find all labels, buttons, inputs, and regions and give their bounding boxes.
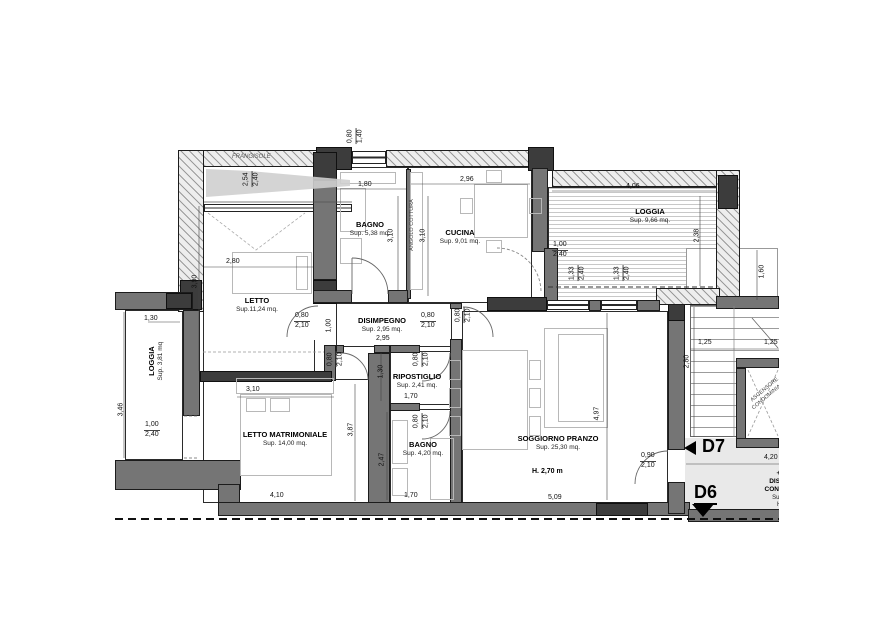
label-soggiorno: SOGGIORNO PRANZO Sup. 25,30 mq. bbox=[500, 434, 616, 452]
room-area: Sup. 25,30 mq. bbox=[500, 444, 616, 452]
wall-pillar bbox=[313, 152, 337, 180]
dim-cucina-w: 2,96 bbox=[460, 176, 474, 183]
chair bbox=[449, 360, 461, 380]
chair bbox=[529, 416, 541, 436]
dim-width: 0,80 bbox=[413, 413, 423, 429]
dim-porta-ripostiglio: 0,80 2,10 bbox=[413, 351, 432, 367]
room-name: RIPOSTIGLIO bbox=[384, 372, 450, 382]
dim-height: 2,10 bbox=[420, 322, 436, 331]
frangisole-note: FRANGISOLE bbox=[232, 154, 271, 160]
dim-height: 2,40 bbox=[252, 171, 261, 187]
dim-right-side: 1,60 bbox=[758, 265, 765, 279]
dim-width: 1,00 bbox=[552, 241, 568, 251]
label-letto-matrimoniale: LETTO MATRIMONIALE Sup. 14,00 mq. bbox=[230, 430, 340, 448]
dim-height: 2,10 bbox=[464, 307, 473, 323]
dim-bagno1-h: 3,10 bbox=[387, 229, 394, 243]
dim-loggia-top-w: 4,06 bbox=[626, 183, 640, 190]
wall-segment bbox=[637, 300, 660, 311]
dim-stair-h: 2,80 bbox=[683, 355, 690, 369]
chair bbox=[460, 198, 473, 214]
door-opening-entry bbox=[669, 450, 684, 482]
wall-segment bbox=[313, 180, 337, 280]
ceiling-height-note: H. 2,70 m bbox=[532, 468, 563, 475]
room-name: SOGGIORNO PRANZO bbox=[500, 434, 616, 444]
pillow bbox=[270, 398, 290, 412]
wall-segment bbox=[736, 358, 779, 368]
dim-porta-loggia: 1,00 2,40 bbox=[552, 241, 568, 260]
wall-pillar bbox=[668, 303, 685, 321]
room-area: Sup. 2,41 mq. bbox=[384, 382, 450, 390]
wall-segment bbox=[374, 345, 390, 353]
unit-d6-arrow-icon bbox=[692, 504, 714, 517]
dim-height: 2,40 bbox=[552, 251, 568, 260]
label-loggia-left: LOGGIA Sup. 3,81 mq bbox=[147, 329, 165, 393]
wall-segment bbox=[313, 290, 352, 303]
dim-ripostiglio-h: 1,30 bbox=[377, 365, 384, 379]
wall-segment bbox=[390, 403, 420, 411]
dim-width: 0,80 bbox=[294, 312, 310, 322]
chair bbox=[449, 388, 461, 408]
unit-label-d6: D6 bbox=[694, 482, 717, 505]
chair bbox=[529, 388, 541, 408]
dim-height: 2,40 bbox=[144, 431, 160, 440]
floor-level: +3,20 m bbox=[742, 468, 779, 478]
wall-pillar bbox=[487, 297, 547, 311]
dim-porta-soggiorno: 0,80 2,10 bbox=[420, 312, 436, 331]
floor-plan: LETTO Sup.11,24 mq. BAGNO Sup. 5,38 mq. … bbox=[0, 0, 880, 622]
pillow bbox=[296, 256, 308, 290]
dim-width: 0,80 bbox=[347, 128, 357, 144]
label-disimpegno-condominiale: +3,20 m DISIMPEGNO CONDOMINIALE Sup. 8,5… bbox=[742, 468, 779, 510]
dim-hall-w: 4,20 bbox=[764, 454, 778, 461]
dim-loggia-top-h: 2,38 bbox=[693, 229, 700, 243]
ceiling-height: H. 2,70 m bbox=[742, 502, 779, 510]
wall-segment bbox=[736, 438, 779, 448]
angolo-cottura-note: ANGOLO COTTURA bbox=[409, 199, 415, 251]
wall-segment bbox=[183, 310, 200, 416]
dim-stair-2: 1,25 bbox=[764, 339, 778, 346]
dim-letto-door-side: 1,00 bbox=[325, 319, 332, 333]
dim-width: 2,54 bbox=[243, 171, 253, 187]
wall-segment bbox=[386, 150, 544, 167]
room-area: Sup. 9,01 mq. bbox=[428, 238, 492, 246]
dim-finestra-2: 1,33 2,40 bbox=[614, 265, 633, 281]
dim-width: 0,90 bbox=[640, 452, 656, 462]
dim-bagno2-h: 2,47 bbox=[378, 453, 385, 467]
dim-porta-ingresso: 0,90 2,10 bbox=[640, 452, 656, 471]
room-name: DISIMPEGNO bbox=[340, 316, 424, 326]
unit-d7-arrow-icon bbox=[684, 441, 696, 455]
pillow bbox=[246, 398, 266, 412]
chair bbox=[529, 198, 542, 214]
label-bagno-2: BAGNO Sup. 4,20 mq. bbox=[392, 440, 454, 458]
wall-pillar bbox=[718, 175, 738, 209]
dim-width: 1,33 bbox=[569, 265, 579, 281]
room-name: LETTO bbox=[222, 296, 292, 306]
room-area: Sup. 4,20 mq. bbox=[392, 450, 454, 458]
dim-height: 2,40 bbox=[578, 265, 587, 281]
dim-cucina-h: 3,10 bbox=[419, 229, 426, 243]
door-opening-loggia-left bbox=[184, 416, 199, 460]
room-area: Sup. 2,95 mq. bbox=[340, 326, 424, 334]
dim-frangisole: 2,54 2,40 bbox=[243, 171, 262, 187]
dim-loggia-left-w: 1,30 bbox=[144, 315, 158, 322]
dim-width: 0,80 bbox=[455, 307, 465, 323]
room-area: Sup. 3,81 mq bbox=[157, 329, 165, 393]
dim-finestra-1: 1,33 2,40 bbox=[569, 265, 588, 281]
room-area: Sup.11,24 mq. bbox=[222, 306, 292, 314]
dim-width: 1,00 bbox=[144, 421, 160, 431]
room-name: CUCINA bbox=[428, 228, 492, 238]
dim-width: 0,80 bbox=[327, 351, 337, 367]
dim-letto-h: 3,90 bbox=[191, 275, 198, 289]
room-area: Sup. 9,66 mq. bbox=[612, 217, 688, 225]
wall-segment bbox=[716, 296, 779, 309]
room-area: Sup. 8,50 mq bbox=[742, 495, 779, 503]
dim-bagno2-w: 1,70 bbox=[404, 492, 418, 499]
dim-height: 2,10 bbox=[294, 322, 310, 331]
dim-height: 2,40 bbox=[623, 265, 632, 281]
window-soggiorno-1 bbox=[547, 300, 589, 310]
room-name: LOGGIA bbox=[612, 207, 688, 217]
label-disimpegno: DISIMPEGNO Sup. 2,95 mq. bbox=[340, 316, 424, 334]
dim-width: 0,80 bbox=[420, 312, 436, 322]
room-name: BAGNO bbox=[392, 440, 454, 450]
dim-porta-loggia-left: 1,00 2,40 bbox=[144, 421, 160, 440]
wall-segment bbox=[668, 303, 685, 450]
label-ripostiglio: RIPOSTIGLIO Sup. 2,41 mq. bbox=[384, 372, 450, 390]
dim-bagno1-w: 1,80 bbox=[358, 181, 372, 188]
label-letto: LETTO Sup.11,24 mq. bbox=[222, 296, 292, 314]
wall-pillar bbox=[596, 503, 648, 516]
window-soggiorno-2 bbox=[601, 300, 637, 310]
wall-segment bbox=[656, 288, 720, 305]
wall-segment bbox=[589, 300, 601, 311]
window-top bbox=[352, 151, 386, 164]
wall-pillar bbox=[166, 293, 192, 309]
dim-porta-letto: 0,80 2,10 bbox=[294, 312, 310, 331]
dim-width: 0,80 bbox=[413, 351, 423, 367]
dim-porta-cucina: 0,80 2,10 bbox=[455, 307, 474, 323]
dim-ripostiglio-w: 1,70 bbox=[404, 393, 418, 400]
dim-height: 1,40 bbox=[356, 128, 365, 144]
room-name: CONDOMINIALE bbox=[742, 486, 779, 494]
chair bbox=[486, 170, 502, 183]
dim-soggiorno-w: 5,09 bbox=[548, 494, 562, 501]
chair bbox=[449, 416, 461, 436]
dim-matrimoniale-w: 4,10 bbox=[270, 492, 284, 499]
dim-width: 1,33 bbox=[614, 265, 624, 281]
room-area: Sup. 14,00 mq. bbox=[230, 440, 340, 448]
room-name: LETTO MATRIMONIALE bbox=[230, 430, 340, 440]
dim-loggia-left-h: 3,46 bbox=[117, 403, 124, 417]
dim-height: 2,10 bbox=[640, 462, 656, 471]
room-name: LOGGIA bbox=[147, 329, 157, 393]
dim-matrimoniale-h: 3,87 bbox=[347, 423, 354, 437]
dim-porta-matrimoniale: 0,80 2,10 bbox=[327, 351, 346, 367]
label-cucina: CUCINA Sup. 9,01 mq. bbox=[428, 228, 492, 246]
wall-segment bbox=[668, 482, 685, 514]
dim-height: 2,10 bbox=[336, 351, 345, 367]
dim-height: 2,10 bbox=[422, 413, 431, 429]
dim-height: 2,10 bbox=[422, 351, 431, 367]
dim-porta-bagno2: 0,80 2,10 bbox=[413, 413, 432, 429]
chair bbox=[529, 360, 541, 380]
dim-letto-w: 2,80 bbox=[226, 258, 240, 265]
dim-stair-1: 1,25 bbox=[698, 339, 712, 346]
bath-wc bbox=[340, 238, 362, 264]
wall-segment bbox=[388, 290, 408, 303]
dim-soggiorno-h: 4,97 bbox=[593, 407, 600, 421]
room-name: DISIMPEGNO bbox=[742, 478, 779, 486]
plan-drawing-area: LETTO Sup.11,24 mq. BAGNO Sup. 5,38 mq. … bbox=[0, 0, 779, 622]
label-loggia-top: LOGGIA Sup. 9,66 mq. bbox=[612, 207, 688, 225]
unit-label-d7: D7 bbox=[702, 436, 725, 457]
dim-matrimoniale-w-int: 3,10 bbox=[246, 386, 260, 393]
dim-top-window: 0,80 1,40 bbox=[347, 128, 366, 144]
dim-disimpegno-w: 2,95 bbox=[376, 335, 390, 342]
